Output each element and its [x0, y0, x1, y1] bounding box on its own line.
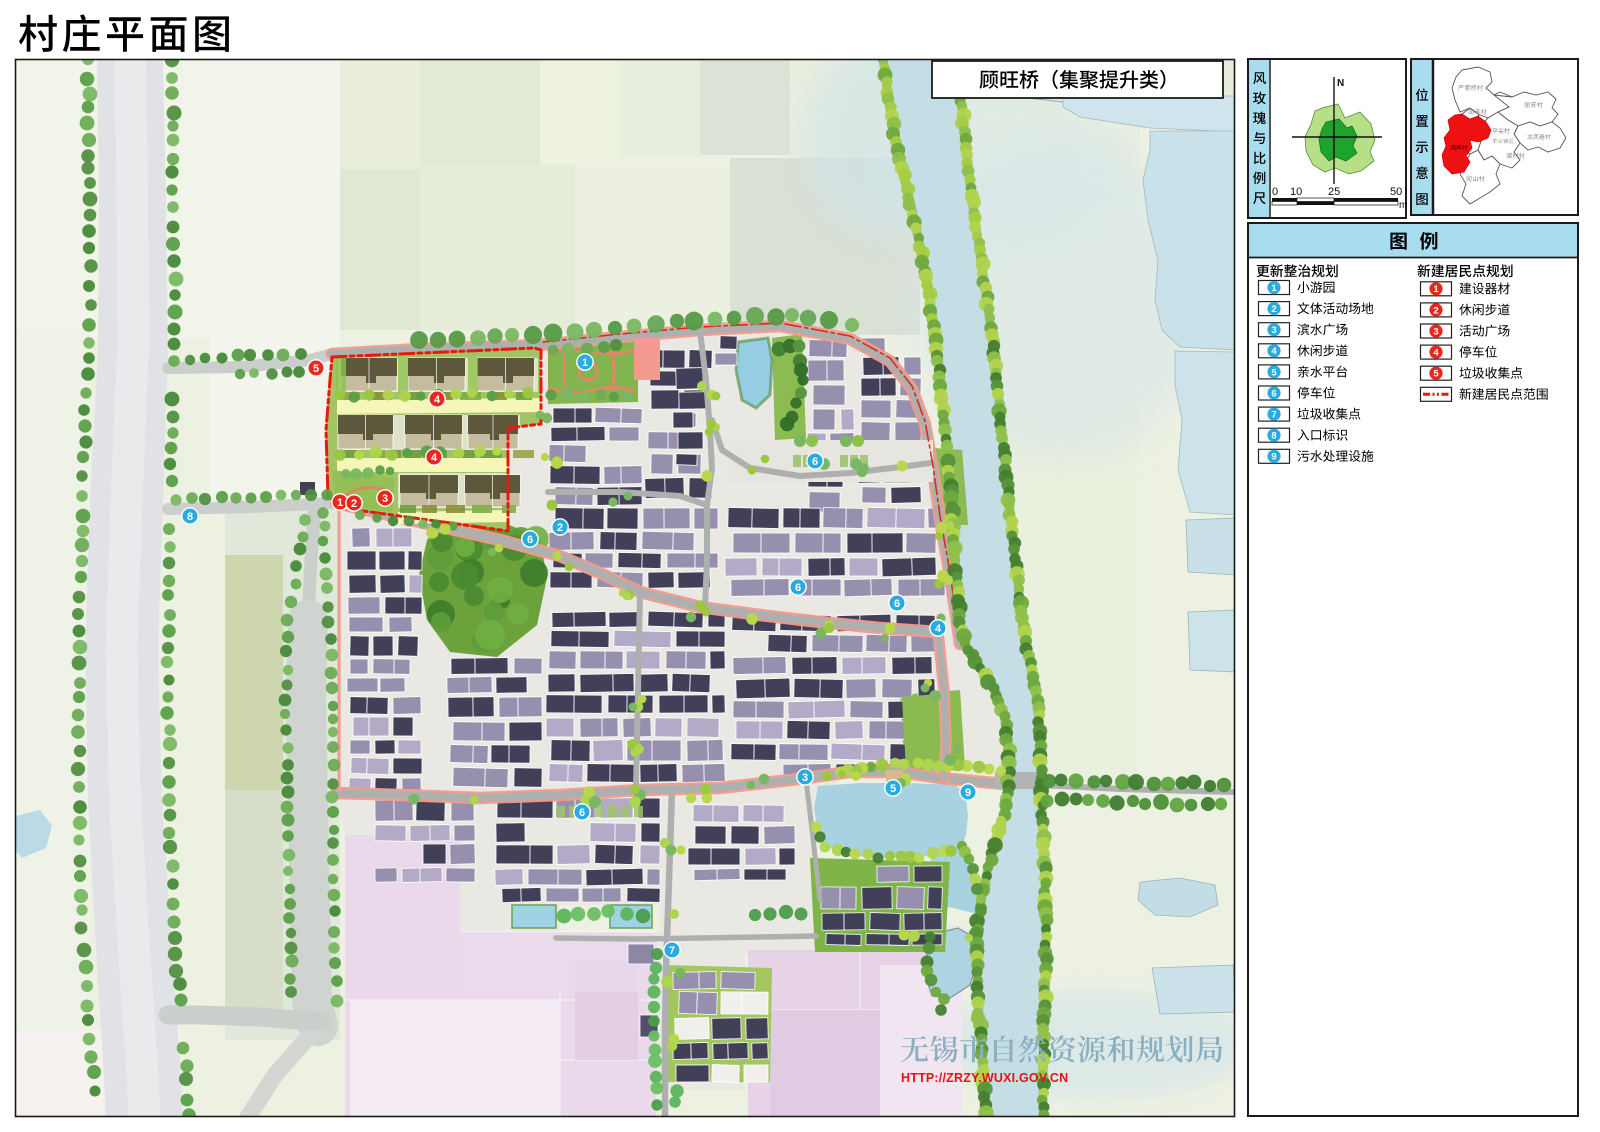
svg-text:6: 6	[812, 456, 818, 468]
svg-text:8: 8	[187, 511, 193, 523]
svg-text:5: 5	[1271, 367, 1277, 378]
svg-text:0: 0	[1272, 186, 1278, 198]
svg-text:50: 50	[1390, 186, 1402, 198]
svg-text:5: 5	[890, 783, 896, 795]
svg-text:9: 9	[965, 787, 971, 799]
svg-text:25: 25	[1328, 186, 1340, 198]
svg-text:2: 2	[1271, 304, 1276, 315]
svg-text:4: 4	[1433, 348, 1439, 359]
svg-text:5: 5	[1433, 369, 1439, 380]
svg-text:1: 1	[582, 357, 588, 369]
svg-text:6: 6	[527, 534, 533, 546]
svg-text:4: 4	[434, 394, 441, 406]
svg-text:3: 3	[382, 493, 388, 505]
svg-text:6: 6	[579, 807, 585, 819]
svg-text:8: 8	[1271, 431, 1276, 442]
svg-text:6: 6	[894, 598, 900, 610]
svg-text:N: N	[1337, 78, 1344, 89]
svg-text:2: 2	[351, 498, 357, 510]
svg-text:3: 3	[1271, 325, 1276, 336]
svg-text:2: 2	[1433, 305, 1438, 316]
svg-text:1: 1	[1271, 283, 1277, 294]
svg-text:6: 6	[1271, 388, 1276, 399]
svg-text:6: 6	[795, 582, 801, 594]
svg-text:2: 2	[557, 522, 563, 534]
svg-text:9: 9	[1271, 452, 1276, 463]
svg-text:7: 7	[1271, 410, 1276, 421]
svg-text:1: 1	[337, 497, 343, 509]
svg-text:3: 3	[1433, 326, 1438, 337]
svg-text:4: 4	[1271, 346, 1277, 357]
svg-text:4: 4	[935, 623, 942, 635]
svg-text:m: m	[1399, 200, 1407, 211]
svg-text:3: 3	[802, 772, 808, 784]
svg-text:7: 7	[669, 945, 675, 957]
svg-text:HTTP://ZRZY.WUXI.GOV.CN: HTTP://ZRZY.WUXI.GOV.CN	[901, 1071, 1068, 1085]
svg-text:10: 10	[1290, 186, 1302, 198]
svg-text:1: 1	[1433, 284, 1439, 295]
svg-text:4: 4	[431, 452, 438, 464]
svg-text:5: 5	[313, 363, 319, 375]
